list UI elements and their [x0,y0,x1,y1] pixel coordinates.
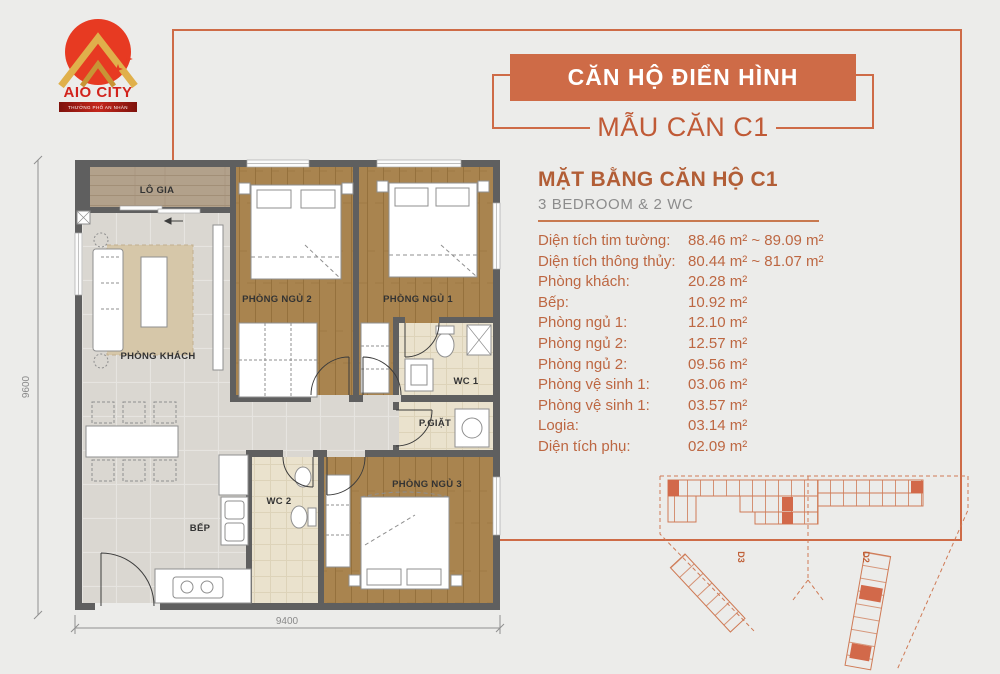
site-key-plan: D3 D2 [635,462,1000,674]
spec-row: Phòng ngủ 2:09.56 m² [538,355,868,376]
spec-row: Diện tích thông thủy:80.44 m² ~ 81.07 m² [538,252,868,273]
room-label-living: PHÒNG KHÁCH [120,350,195,362]
poster: AIO CITY THƯỞNG PHỐ AN NHÀN CĂN HỘ ĐIỂN … [0,0,1000,674]
brand-logo: AIO CITY THƯỞNG PHỐ AN NHÀN [45,14,151,110]
room-label-laundry: P.GIẶT [419,418,451,429]
room-label-kitchen: BẾP [190,523,211,534]
spec-row: Diện tích tim tường:88.46 m² ~ 89.09 m² [538,231,868,252]
title-underline [538,220,819,222]
block-d2-label: D2 [861,551,871,563]
spec-row: Phòng vệ sinh 1:03.57 m² [538,396,868,417]
brand-tagline: THƯỞNG PHỐ AN NHÀN [68,105,128,110]
room-label-bedroom1: PHÒNG NGỦ 1 [383,293,453,305]
spec-row: Phòng vệ sinh 1:03.06 m² [538,375,868,396]
room-label-logia: LÔ GIA [140,184,175,196]
header-banner: CĂN HỘ ĐIỂN HÌNH [510,54,856,101]
brand-emblem-icon [45,14,151,92]
spec-row: Phòng khách:20.28 m² [538,272,868,293]
room-label-bedroom2: PHÒNG NGỦ 2 [242,293,312,305]
room-label-wc2: WC 2 [267,496,292,507]
plan-subtitle: 3 BEDROOM & 2 WC [538,196,693,213]
spec-list: Diện tích tim tường:88.46 m² ~ 89.09 m² … [538,231,868,458]
block-d3-label: D3 [736,551,746,563]
spec-row: Bếp:10.92 m² [538,293,868,314]
room-label-wc1: WC 1 [454,376,479,387]
brand-tagline-bar: THƯỞNG PHỐ AN NHÀN [59,102,137,112]
plan-title: MẶT BẰNG CĂN HỘ C1 [538,168,778,192]
brand-name: AIO CITY [45,84,151,101]
header-banner-text: CĂN HỘ ĐIỂN HÌNH [568,64,799,91]
dim-height-label: 9600 [21,375,32,398]
spec-row: Diện tích phụ:02.09 m² [538,437,868,458]
spec-row: Logia:03.14 m² [538,416,868,437]
room-label-bedroom3: PHÒNG NGỦ 3 [392,478,462,490]
floor-plan: LÔ GIA PHÒNG KHÁCH PHÒNG NGỦ 2 PHÒNG NGỦ… [15,145,520,660]
spec-row: Phòng ngủ 2:12.57 m² [538,334,868,355]
spec-row: Phòng ngủ 1:12.10 m² [538,313,868,334]
model-title: MẪU CĂN C1 [510,112,856,143]
dim-width-label: 9400 [276,616,299,627]
block-d2-units [818,480,923,670]
